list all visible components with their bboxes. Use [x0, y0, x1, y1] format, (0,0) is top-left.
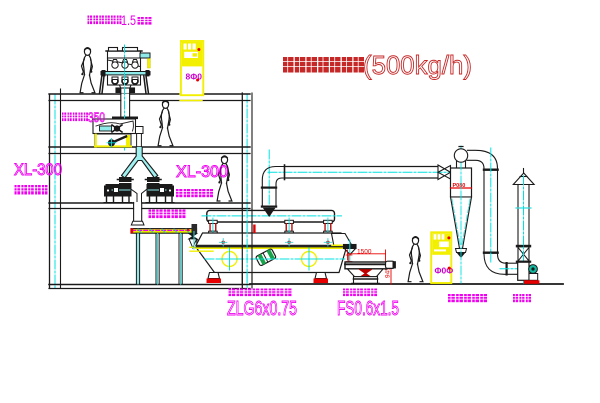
- svg-text:XL-300: XL-300: [14, 161, 62, 179]
- svg-text:1.5: 1.5: [121, 12, 136, 28]
- svg-text:ZLG6x0.75: ZLG6x0.75: [227, 298, 297, 320]
- svg-text:1500: 1500: [357, 248, 372, 255]
- svg-text:FS0.6x1.5: FS0.6x1.5: [337, 298, 399, 320]
- svg-text:(500kg/h): (500kg/h): [363, 50, 472, 80]
- svg-text:350: 350: [88, 109, 105, 125]
- svg-text:Φ0Φ: Φ0Φ: [435, 266, 454, 276]
- svg-text:8Φ0: 8Φ0: [186, 72, 203, 82]
- svg-text:XL-300: XL-300: [176, 163, 228, 181]
